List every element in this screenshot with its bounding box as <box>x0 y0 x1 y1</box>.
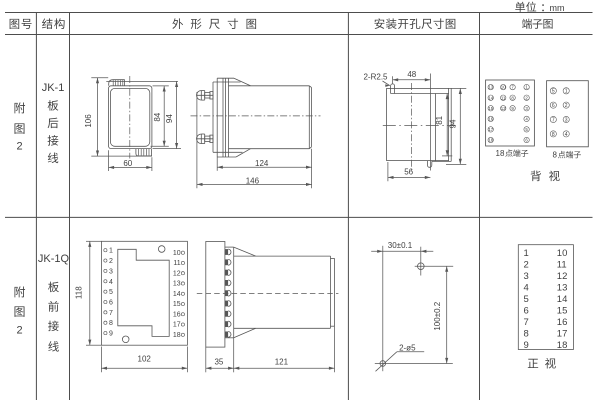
svg-text:94: 94 <box>449 119 458 128</box>
svg-text:7: 7 <box>109 310 113 317</box>
svg-text:1: 1 <box>565 89 568 95</box>
svg-text:1: 1 <box>109 248 113 255</box>
svg-text:9: 9 <box>109 331 113 338</box>
svg-text:16: 16 <box>488 117 493 122</box>
svg-text:106: 106 <box>84 114 93 128</box>
svg-text:35: 35 <box>214 357 223 366</box>
svg-text:JK-1: JK-1 <box>42 82 65 94</box>
svg-text:2: 2 <box>16 140 22 152</box>
svg-text:8: 8 <box>524 329 529 340</box>
svg-text:2: 2 <box>524 259 529 270</box>
svg-text:10: 10 <box>173 250 181 257</box>
svg-text:56: 56 <box>404 167 413 176</box>
svg-text:2-R2.5: 2-R2.5 <box>363 72 388 81</box>
svg-text:8: 8 <box>109 320 113 327</box>
svg-text:60: 60 <box>123 159 132 168</box>
svg-text:11: 11 <box>501 95 506 100</box>
svg-text:7: 7 <box>511 85 514 90</box>
svg-text:18: 18 <box>557 340 568 351</box>
svg-text:121: 121 <box>275 357 289 366</box>
svg-text:15: 15 <box>173 301 181 308</box>
svg-text:4: 4 <box>524 282 529 293</box>
svg-text:5: 5 <box>109 289 113 296</box>
svg-text:18: 18 <box>496 149 505 158</box>
svg-text:17: 17 <box>488 127 493 132</box>
svg-text:17: 17 <box>173 322 181 329</box>
svg-text:12: 12 <box>501 106 506 111</box>
svg-text:124: 124 <box>255 159 269 168</box>
svg-text:7: 7 <box>524 317 529 328</box>
svg-text:9: 9 <box>511 106 514 111</box>
svg-text:15: 15 <box>557 306 568 317</box>
svg-text:3: 3 <box>524 271 529 282</box>
svg-text:13: 13 <box>173 281 181 288</box>
svg-text:1: 1 <box>524 248 529 259</box>
svg-text:8: 8 <box>511 95 514 100</box>
svg-text:48: 48 <box>407 70 416 79</box>
svg-text:2-ø5: 2-ø5 <box>399 344 416 353</box>
svg-text:6: 6 <box>552 103 555 109</box>
svg-text:3: 3 <box>109 268 113 275</box>
svg-text:JK-1Q: JK-1Q <box>38 253 70 265</box>
svg-text:14: 14 <box>488 95 493 100</box>
svg-text:1: 1 <box>525 85 528 90</box>
svg-text:4: 4 <box>565 132 568 138</box>
svg-text:10: 10 <box>501 85 506 90</box>
svg-text:2: 2 <box>16 324 22 336</box>
svg-text:11: 11 <box>557 259 567 270</box>
svg-text:30±0.1: 30±0.1 <box>388 241 413 250</box>
svg-text:146: 146 <box>246 177 260 186</box>
svg-text:9: 9 <box>524 340 529 351</box>
svg-text:16: 16 <box>557 317 568 328</box>
svg-text:12: 12 <box>173 270 181 277</box>
svg-text:7: 7 <box>552 117 555 123</box>
svg-text:5: 5 <box>525 127 528 132</box>
svg-text:2: 2 <box>525 95 528 100</box>
svg-text:5: 5 <box>552 89 555 95</box>
svg-text:3: 3 <box>565 117 568 123</box>
svg-text:6: 6 <box>525 138 528 143</box>
svg-text:102: 102 <box>138 355 152 364</box>
svg-text:2: 2 <box>565 103 568 109</box>
svg-text:81: 81 <box>435 115 444 124</box>
svg-text:18: 18 <box>488 138 493 143</box>
svg-text:13: 13 <box>557 282 568 293</box>
svg-text:16: 16 <box>173 311 181 318</box>
svg-text:84: 84 <box>153 112 162 121</box>
svg-text:8: 8 <box>552 151 557 160</box>
svg-text:17: 17 <box>557 329 568 340</box>
svg-text:15: 15 <box>488 106 493 111</box>
svg-text:14: 14 <box>173 291 181 298</box>
svg-text:2: 2 <box>109 258 113 265</box>
svg-text:3: 3 <box>525 106 528 111</box>
svg-text:10: 10 <box>557 248 568 259</box>
svg-text:11: 11 <box>173 260 180 267</box>
svg-text:12: 12 <box>557 271 568 282</box>
svg-text:6: 6 <box>109 300 113 307</box>
svg-text:5: 5 <box>524 294 529 305</box>
svg-text:8: 8 <box>552 132 555 138</box>
svg-text:94: 94 <box>165 114 174 123</box>
svg-text:13: 13 <box>488 85 493 90</box>
svg-text:118: 118 <box>75 286 84 299</box>
svg-text:mm: mm <box>550 3 565 13</box>
svg-text:18: 18 <box>173 332 181 339</box>
svg-text:6: 6 <box>524 306 529 317</box>
svg-text:4: 4 <box>109 279 113 286</box>
svg-text:14: 14 <box>557 294 568 305</box>
svg-text:100±0.2: 100±0.2 <box>433 301 442 330</box>
svg-text:4: 4 <box>525 117 528 122</box>
